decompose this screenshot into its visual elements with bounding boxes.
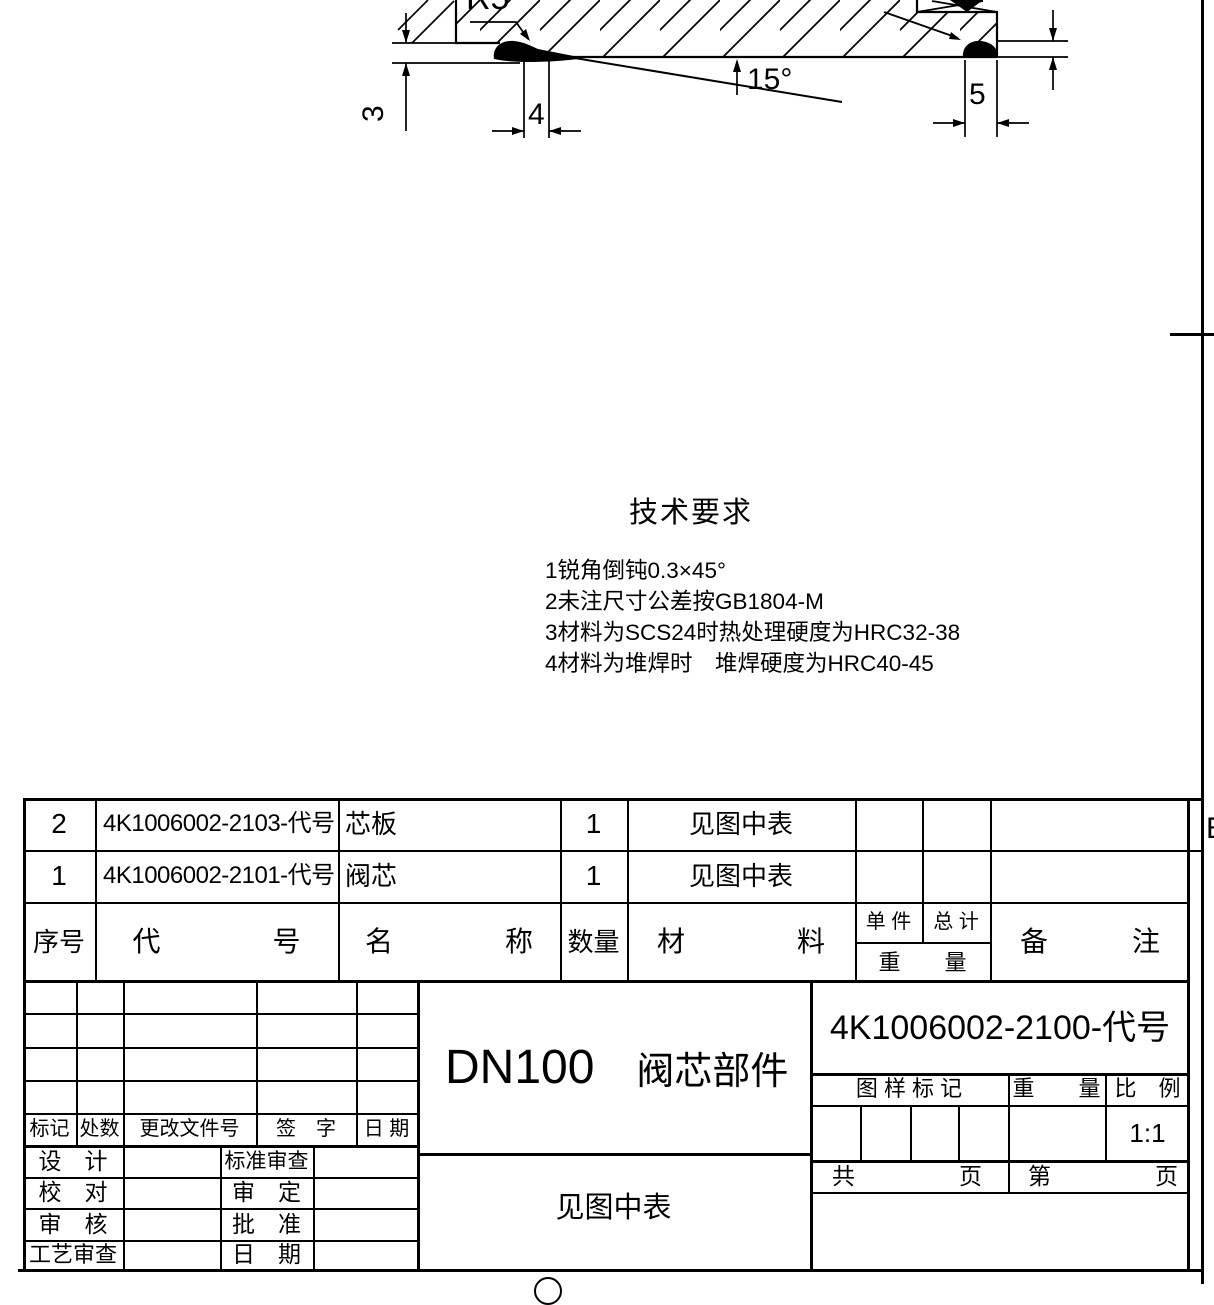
header-material: 材 料 [627, 902, 855, 982]
dim-left-face-label: 4 [528, 98, 545, 131]
header-qty: 数量 [560, 902, 627, 982]
tech-title: 技术要求 [629, 489, 975, 531]
dim-left-face: 4 [492, 60, 581, 138]
technical-requirements: 技术要求 1锐角倒钝0.3×45° 2未注尺寸公差按GB1804-M 3材料为S… [545, 489, 975, 679]
grid-line [313, 1145, 315, 1272]
grid-line [860, 1105, 862, 1160]
part-code: 4K1006002-2103-代号 [103, 798, 336, 850]
drawing-sheet: R5 3 4 [0, 0, 1214, 1284]
signoff-design: 设 计 [23, 1145, 123, 1177]
stamp-scale-label: 比 例 [1105, 1073, 1190, 1105]
scale-value: 1:1 [1105, 1105, 1190, 1160]
dim-right-face: 5 [933, 60, 1029, 137]
product-name: 阀芯部件 [636, 1040, 788, 1095]
pages-total: 共 页 [810, 1160, 1008, 1192]
grid-line [810, 1192, 1190, 1194]
pages-current-unit: 页 [1155, 1165, 1178, 1188]
stamp-mark-label: 图 样 标 记 [810, 1073, 1008, 1105]
pages-total-unit: 页 [959, 1165, 982, 1188]
material-note: 见图中表 [417, 1153, 810, 1263]
grid-line [958, 1105, 960, 1160]
product-title: DN100 阀芯部件 [417, 982, 810, 1153]
dim-angle: 15° [733, 59, 792, 96]
projection-symbol [534, 1277, 562, 1305]
pages-total-label: 共 [832, 1165, 855, 1188]
header-seq: 序号 [23, 902, 95, 982]
revision-count: 处数 [76, 1113, 123, 1145]
header-code: 代 号 [95, 902, 338, 982]
signoff-proof: 校 对 [23, 1177, 123, 1208]
zone-tick [1170, 333, 1214, 336]
product-model: DN100 [445, 1040, 594, 1095]
header-total-weight: 总 计 [922, 902, 990, 942]
header-weight: 重 量 [855, 944, 990, 982]
dim-angle-label: 15° [747, 63, 792, 96]
part-code: 4K1006002-2101-代号 [103, 850, 336, 902]
signoff-process-check: 工艺审查 [23, 1240, 123, 1269]
stamp-weight-label: 重 量 [1008, 1073, 1105, 1105]
frame-bottom [18, 1269, 1203, 1272]
part-qty: 1 [560, 798, 627, 850]
parts-and-titleblock: 2 4K1006002-2103-代号 芯板 1 见图中表 1 4K100600… [23, 798, 1190, 1272]
dim-right-face-label: 5 [969, 78, 986, 111]
header-unit-weight: 单 件 [855, 902, 922, 942]
signoff-approve2: 批 准 [220, 1208, 313, 1240]
part-seq: 1 [23, 850, 95, 902]
signoff-std-check: 标准审查 [220, 1145, 313, 1177]
signoff-review: 审 核 [23, 1208, 123, 1240]
revision-date: 日 期 [356, 1113, 417, 1145]
tech-item: 1锐角倒钝0.3×45° [545, 555, 975, 586]
dim-step-height-label: 3 [357, 105, 390, 122]
tech-item: 4材料为堆焊时 堆焊硬度为HRC40-45 [545, 648, 975, 679]
part-qty: 1 [560, 850, 627, 902]
signoff-date: 日 期 [220, 1240, 313, 1269]
part-material: 见图中表 [627, 798, 855, 850]
tech-item: 3材料为SCS24时热处理硬度为HRC32-38 [545, 617, 975, 648]
drawing-number: 4K1006002-2100-代号 [810, 982, 1190, 1073]
revision-mark: 标记 [23, 1113, 76, 1145]
pages-current-label: 第 [1028, 1165, 1051, 1188]
header-name: 名 称 [338, 902, 560, 982]
part-name: 芯板 [345, 798, 555, 850]
pages-current: 第 页 [1008, 1160, 1190, 1192]
signoff-approve1: 审 定 [220, 1177, 313, 1208]
section-view: R5 3 4 [0, 0, 1214, 400]
revision-sign: 签 字 [256, 1113, 356, 1145]
grid-line [910, 1105, 912, 1160]
revision-doc-no: 更改文件号 [123, 1113, 256, 1145]
dim-bead-height [997, 10, 1068, 90]
header-remark: 备 注 [990, 902, 1190, 982]
grid-line [123, 1145, 125, 1272]
part-name: 阀芯 [345, 850, 555, 902]
tech-list: 1锐角倒钝0.3×45° 2未注尺寸公差按GB1804-M 3材料为SCS24时… [545, 555, 975, 679]
zone-letter: B [1206, 812, 1214, 846]
part-seq: 2 [23, 798, 95, 850]
dim-radius-label: R5 [466, 0, 509, 17]
frame-right [1201, 0, 1204, 1284]
part-material: 见图中表 [627, 850, 855, 902]
tech-item: 2未注尺寸公差按GB1804-M [545, 586, 975, 617]
